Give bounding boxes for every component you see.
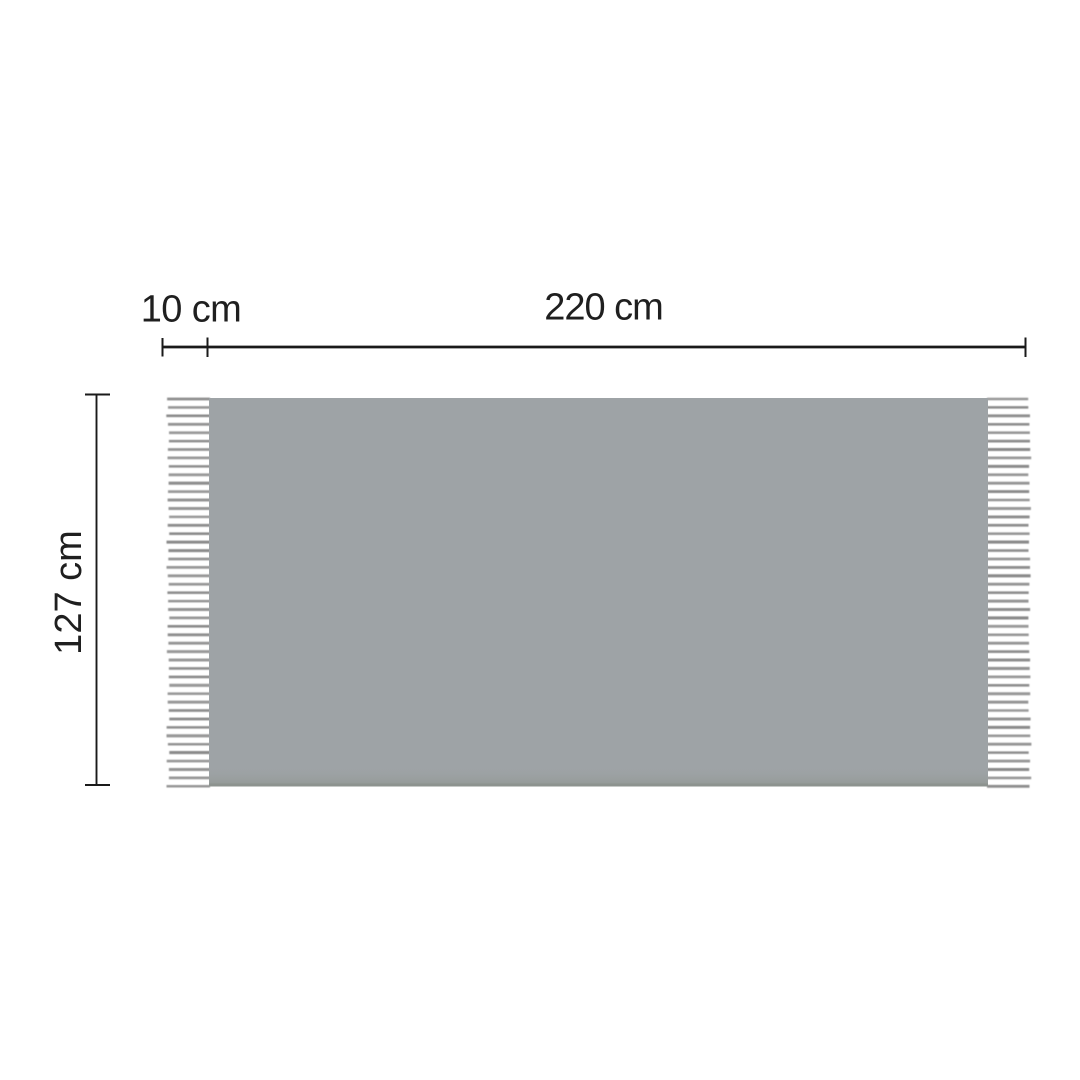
svg-text:10 cm: 10 cm bbox=[141, 289, 241, 331]
svg-text:220 cm: 220 cm bbox=[544, 287, 663, 329]
svg-text:127 cm: 127 cm bbox=[48, 530, 90, 655]
